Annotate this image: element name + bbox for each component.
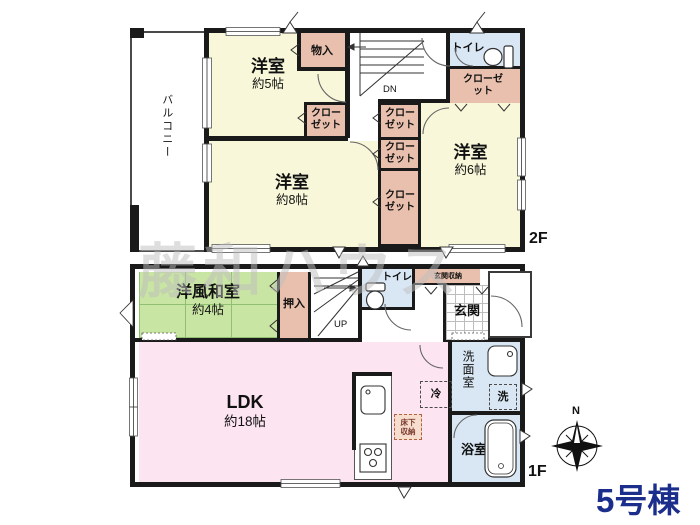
floorplan-canvas: 冷 床下収納 洗 (0, 0, 700, 525)
oshiire-label: 押入 (279, 298, 309, 312)
compass-north-label: N (572, 405, 580, 417)
room-2f-west8-label: 洋室 約8帖 (209, 172, 375, 209)
closet-2f-right-label: クローゼット (460, 74, 506, 97)
floor1-label: 1F (528, 463, 547, 481)
room-name: 洋室 (421, 142, 520, 163)
room-name: 洋室 (200, 56, 336, 77)
wall (352, 372, 392, 376)
compass-icon (551, 420, 603, 472)
wall-block (130, 205, 139, 252)
balcony-label: バルコニー (159, 94, 173, 159)
building-number-label: 5号棟 (596, 474, 680, 522)
room-size: 約8帖 (209, 193, 375, 209)
room-2f-west5-label: 洋室 約5帖 (200, 56, 336, 93)
entrance-label: 玄関 (448, 303, 486, 319)
closet-2f-b1-label: クローゼット (382, 108, 418, 131)
closet-2f-b3-label: クローゼット (382, 190, 418, 213)
underfloor-storage-label: 床下収納 (400, 418, 417, 437)
toilet-1f-label: トイレ (380, 272, 414, 285)
bath-label: 浴室 (454, 442, 494, 458)
floor2-label: 2F (529, 230, 548, 248)
room-size: 約6帖 (421, 163, 520, 179)
entrance-storage-label: 玄関収納 (418, 273, 478, 282)
room-name: 洋風和室 (139, 283, 277, 303)
washroom-label: 洗面室 (460, 350, 475, 389)
washitsu-label: 洋風和室 約4帖 (139, 283, 277, 319)
room-size: 約18帖 (139, 414, 351, 431)
storage-monoire-label: 物入 (302, 45, 342, 59)
washer-space: 洗 (489, 384, 517, 410)
wall (452, 411, 520, 415)
toilet-2f-label: トイレ (450, 42, 486, 56)
entrance-porch (488, 271, 532, 338)
closet-2f-a-label: クローゼット (308, 108, 344, 131)
room-size: 約5帖 (200, 77, 336, 93)
room-size: 約4帖 (139, 303, 277, 319)
room-2f-west6-label: 洋室 約6帖 (421, 142, 520, 179)
wall (134, 338, 362, 342)
underfloor-storage: 床下収納 (394, 414, 422, 440)
room-name: 洋室 (209, 172, 375, 193)
wall-block (130, 28, 144, 38)
closet-2f-b2-label: クローゼット (382, 142, 418, 165)
room-name: LDK (139, 391, 351, 414)
kitchen-counter (354, 374, 392, 480)
wall (352, 372, 356, 450)
fridge-space: 冷 (420, 381, 452, 408)
ldk-label: LDK 約18帖 (139, 391, 351, 430)
